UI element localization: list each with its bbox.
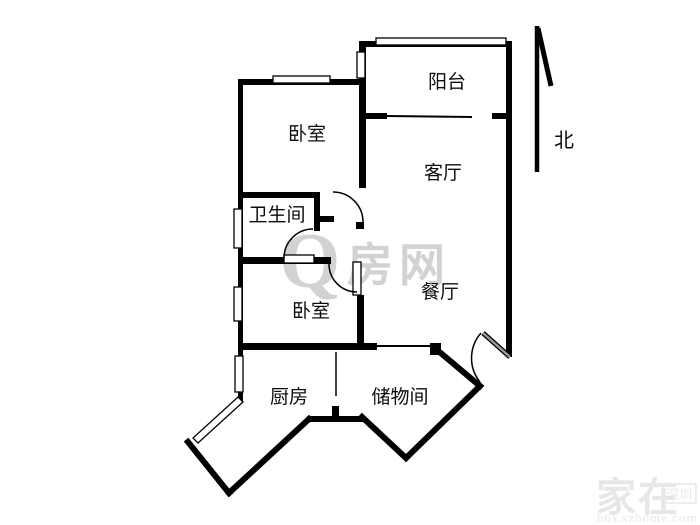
- wall-kitchen-bay-right: [229, 419, 309, 493]
- corner-watermark: 家在 深圳 bbs.szhome.com: [596, 475, 698, 525]
- label-kitchen: 厨房: [270, 386, 308, 408]
- floor-plan-image: Q 房网 家在 深圳 bbs.szhome.com: [0, 0, 700, 525]
- label-bathroom: 卫生间: [248, 204, 305, 226]
- wall-bedroom2-bottom: [238, 343, 377, 350]
- window-kitchen-diagonal: [193, 397, 243, 443]
- label-balcony: 阳台: [428, 71, 466, 93]
- wall-balcony-divider-right-tick: [492, 113, 506, 119]
- wall-kitchen-bay-left: [188, 442, 229, 493]
- window-bedroom1-top: [273, 76, 330, 83]
- opening-balcony-sliding: [387, 116, 472, 117]
- wall-west-lower: [357, 295, 364, 348]
- label-storage: 储物间: [371, 386, 428, 408]
- door-leaf-bathroom: [284, 255, 314, 263]
- wall-kitchen-divider-stub: [332, 406, 339, 419]
- window-bedroom2-left: [234, 287, 242, 321]
- door-leaf-bedroom2: [353, 262, 361, 295]
- window-bathroom-left: [234, 209, 242, 248]
- wall-hall-nub: [356, 222, 364, 229]
- window-kitchen-left: [235, 356, 243, 392]
- window-balcony-top: [376, 38, 506, 45]
- wall-bathroom-right: [314, 192, 320, 231]
- label-living: 客厅: [424, 162, 462, 184]
- wall-right-outer: [506, 41, 512, 357]
- wall-storage-bay-left: [362, 417, 406, 458]
- label-dining: 餐厅: [421, 281, 459, 303]
- wall-bathroom-top: [238, 192, 320, 198]
- door-leaf-dining-storage: [483, 333, 510, 357]
- north-arrow-head: [538, 28, 551, 86]
- label-bedroom1: 卧室: [288, 123, 326, 145]
- north-label: 北: [554, 129, 574, 152]
- north-arrow: 北: [537, 26, 574, 172]
- window-balcony-left: [357, 52, 365, 78]
- door-arc-dining-storage: [472, 333, 481, 382]
- corner-watermark-badge: 深圳: [666, 487, 692, 502]
- corner-watermark-url: bbs.szhome.com: [597, 510, 698, 525]
- wall-bathroom-jamb-stub: [318, 216, 334, 222]
- label-bedroom2: 卧室: [292, 300, 330, 322]
- floor-plan-svg: Q 房网 家在 深圳 bbs.szhome.com: [0, 0, 700, 525]
